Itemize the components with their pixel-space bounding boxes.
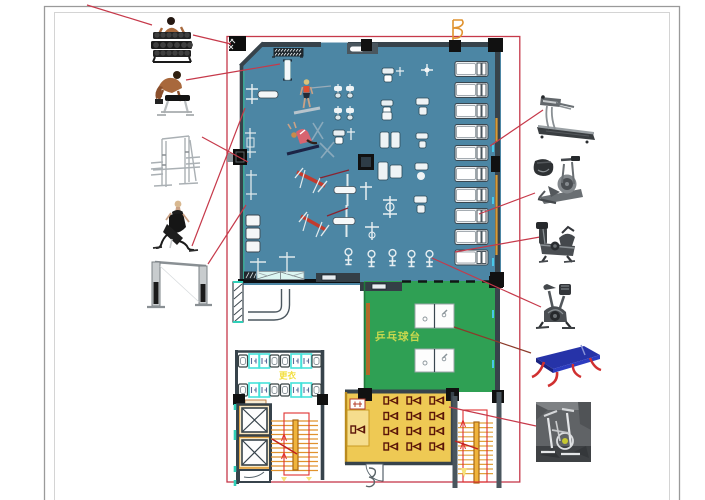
- svg-text:更衣: 更衣: [279, 371, 297, 381]
- svg-text:乒乓球台: 乒乓球台: [375, 330, 421, 343]
